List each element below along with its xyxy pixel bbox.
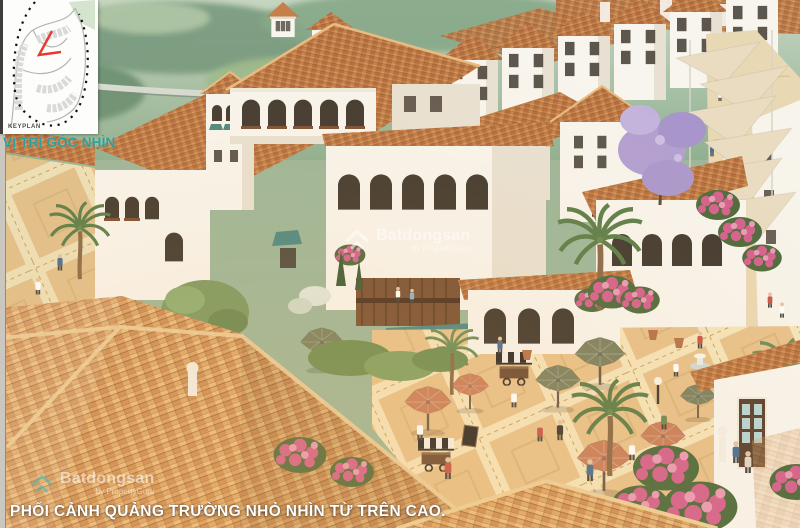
keyplan-panel: KEYPLAN [0,0,98,134]
view-position-label: VỊ TRÍ GÓC NHÌN [3,135,116,150]
keyplan-map [3,0,95,134]
image-caption: PHỐI CẢNH QUẢNG TRƯỜNG NHỎ NHÌN TỪ TRÊN … [10,503,446,521]
watermark-byline: by PropertyGuru [376,245,470,253]
watermark-bottom-left: Batdongsan by PropertyGuru [30,471,154,496]
watermark-byline: by PropertyGuru [60,488,154,496]
batdongsan-logo-icon [344,227,370,253]
rendering-scene [0,0,800,528]
watermark-brand: Batdongsan [60,471,154,487]
sunlight-overlay [0,0,800,528]
keyplan-title: KEYPLAN [8,124,41,130]
watermark-brand: Batdongsan [376,228,470,244]
rendering-page: KEYPLAN VỊ TRÍ GÓC NHÌN Batdongsan by Pr… [0,0,800,528]
watermark-center: Batdongsan by PropertyGuru [344,227,470,253]
batdongsan-logo-icon [30,472,54,496]
